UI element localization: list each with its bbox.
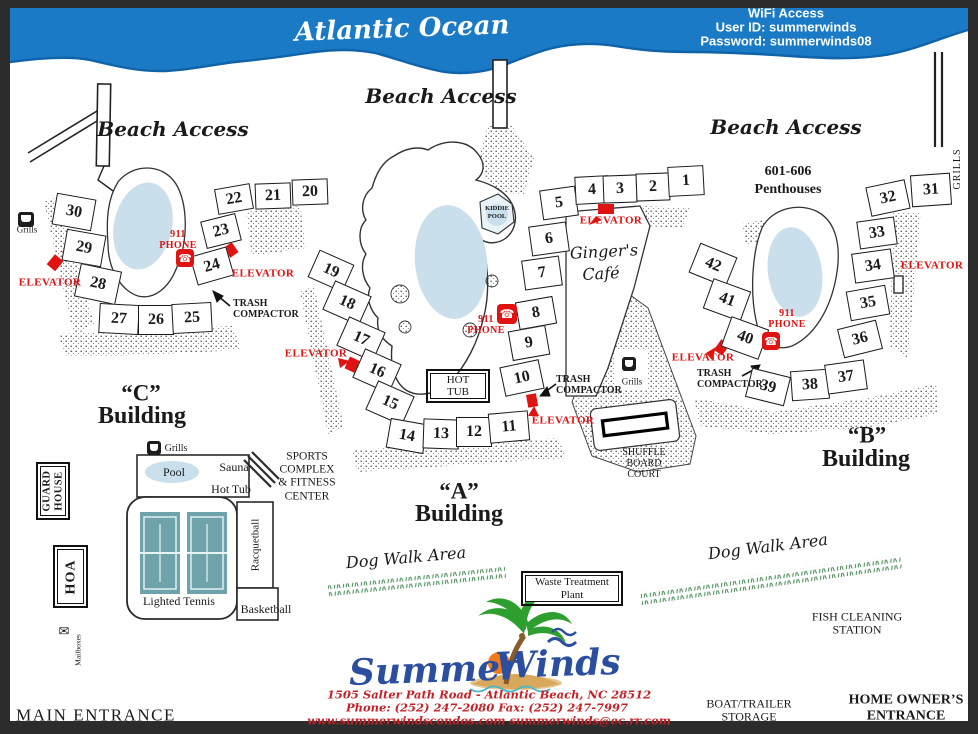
trash-line: TRASH: [697, 368, 731, 379]
unit-5: 5: [539, 186, 579, 221]
shuffle-line: BOARD: [626, 458, 661, 469]
shuffle-line: SHUFFLE: [622, 447, 665, 458]
logo-web-email: www.summerwindscondos.com summerwinds@ec…: [307, 715, 671, 727]
unit-29: 29: [62, 229, 107, 267]
main-entrance-label: MAIN ENTRANCE: [16, 707, 176, 724]
phone-glyph: ☎: [178, 252, 192, 265]
trash-compactor-b: TRASH COMPACTOR: [697, 368, 763, 390]
elevator-label-b-east: ELEVATOR: [901, 261, 964, 272]
beach-access-center: Beach Access: [365, 86, 516, 106]
elevator-label-a-north: ELEVATOR: [580, 216, 643, 227]
sports-line: SPORTS: [286, 451, 328, 464]
grill-icon: [147, 441, 161, 455]
grills-label-sports: Grills: [165, 444, 188, 454]
elevator-label-c-right: ELEVATOR: [232, 269, 295, 280]
grill-icon: [622, 357, 636, 371]
phone-911-icon: ☎: [762, 332, 780, 350]
racquetball-label: Racquetball: [251, 519, 262, 572]
phone-line: 911: [779, 308, 795, 319]
wifi-title: WiFi Access: [748, 7, 824, 20]
unit-21: 21: [255, 182, 292, 209]
phone-glyph: ☎: [764, 335, 778, 348]
trash-compactor-a: TRASH COMPACTOR: [556, 374, 622, 396]
beach-access-right: Beach Access: [710, 117, 861, 137]
sports-line: CENTER: [285, 490, 330, 503]
unit-1: 1: [667, 165, 705, 197]
phone-line: 911: [478, 314, 494, 325]
elevator-shaft-b-right: [894, 276, 903, 293]
elevator-label-b-west: ELEVATOR: [672, 353, 735, 364]
waste-line: Plant: [561, 589, 584, 601]
unit-38: 38: [790, 369, 830, 402]
mailboxes-label: Mailboxes: [74, 634, 82, 666]
logo-phone-fax: Phone: (252) 247-2080 Fax: (252) 247-799…: [346, 702, 628, 714]
hot-tub-box: HOT TUB: [430, 373, 486, 399]
elevator-label-a-east: ELEVATOR: [532, 416, 595, 427]
unit-37: 37: [824, 359, 868, 394]
phone-line: PHONE: [467, 325, 505, 336]
sports-complex-title: SPORTS COMPLEX & FITNESS CENTER: [278, 451, 335, 504]
gingers-cafe-line1: Ginger's: [570, 242, 639, 262]
sports-pool-label: Pool: [163, 466, 185, 478]
ocean-title: Atlantic Ocean: [294, 12, 510, 45]
guard-line: GUARD: [41, 471, 52, 512]
phone-line: PHONE: [768, 319, 806, 330]
unit-12: 12: [456, 417, 492, 447]
logo-name-part2: Winds: [495, 644, 621, 684]
guard-house-box: GUARD HOUSE: [40, 466, 66, 516]
grills-label-vertical: GRILLS: [953, 149, 963, 190]
trash-line: COMPACTOR: [697, 379, 763, 390]
homeowner-line: ENTRANCE: [867, 708, 946, 724]
penthouses-label: Penthouses: [755, 183, 822, 197]
hot-tub-text: HOT TUB: [447, 374, 470, 399]
unit-33: 33: [856, 216, 898, 249]
phone-911-icon: ☎: [497, 304, 517, 324]
boat-trailer-label: BOAT/TRAILER STORAGE: [706, 698, 791, 725]
hot-tub-line: TUB: [447, 386, 469, 398]
trash-line: TRASH: [556, 374, 590, 385]
logo-address: 1505 Salter Path Road - Atlantic Beach, …: [327, 689, 651, 701]
building-c-quote: “C”: [121, 382, 161, 405]
building-b-label: Building: [822, 447, 910, 471]
kiddie-pool-line1: KIDDIE: [485, 206, 509, 213]
unit-11: 11: [488, 410, 530, 443]
penthouses-range: 601-606: [765, 165, 812, 179]
phone-911-icon: ☎: [176, 249, 194, 267]
unit-27: 27: [98, 303, 140, 335]
hoa-box: HOA: [57, 549, 84, 604]
unit-31: 31: [910, 173, 952, 208]
unit-13: 13: [422, 418, 459, 449]
building-b-quote: “B”: [848, 424, 886, 447]
basketball-label: Basketball: [241, 603, 292, 615]
fish-cleaning-label: FISH CLEANING STATION: [812, 611, 902, 638]
homeowner-line: HOME OWNER’S: [849, 692, 964, 708]
resort-map: 30 29 28 27 26 25 24 23 22 21 20 19 18 1…: [0, 0, 978, 734]
unit-20: 20: [292, 178, 329, 205]
shuffle-line: COURT: [627, 470, 660, 481]
waste-treatment-box: Waste Treatment Plant: [525, 575, 619, 602]
elevator-label-c-left: ELEVATOR: [19, 278, 82, 289]
guard-line: HOUSE: [53, 471, 64, 510]
wifi-user: User ID: summerwinds: [716, 21, 857, 34]
phone-911-label-c: 911 PHONE: [159, 229, 197, 251]
shuffleboard-label: SHUFFLE BOARD COURT: [622, 447, 665, 481]
unit-7: 7: [521, 256, 563, 291]
fish-line: STATION: [832, 624, 881, 637]
unit-3: 3: [603, 174, 638, 203]
building-c-label: Building: [98, 404, 186, 428]
unit-34: 34: [851, 248, 895, 283]
wifi-password: Password: summerwinds08: [700, 35, 871, 48]
grills-label-dune: Grills: [622, 378, 643, 387]
building-a-quote: “A”: [439, 480, 479, 503]
mailboxes-icon: ✉: [59, 625, 70, 638]
beach-access-left: Beach Access: [97, 119, 248, 139]
trash-line: TRASH: [233, 298, 267, 309]
phone-911-label-b: 911 PHONE: [768, 308, 806, 330]
homeowner-entrance-label: HOME OWNER’S ENTRANCE: [849, 692, 964, 723]
grills-label-c: Grills: [17, 226, 38, 235]
hoa-text: HOA: [63, 559, 78, 594]
phone-glyph: ☎: [500, 307, 515, 322]
trash-line: COMPACTOR: [556, 385, 622, 396]
fish-line: FISH CLEANING: [812, 611, 902, 624]
logo-name-part1: Summer: [348, 649, 519, 691]
trash-line: COMPACTOR: [233, 309, 299, 320]
elevator-label-a-west: ELEVATOR: [285, 349, 348, 360]
phone-line: 911: [170, 229, 186, 240]
waste-line: Waste Treatment: [535, 576, 609, 588]
waste-treatment-text: Waste Treatment Plant: [535, 576, 609, 601]
trash-compactor-c: TRASH COMPACTOR: [233, 298, 299, 320]
unit-6: 6: [528, 222, 570, 257]
sauna-label: Sauna: [219, 461, 248, 473]
hot-tub-small-label: Hot Tub: [211, 483, 251, 495]
gingers-cafe-line2: Café: [582, 265, 620, 283]
sports-line: COMPLEX: [280, 464, 335, 477]
unit-26: 26: [138, 305, 174, 335]
unit-25: 25: [171, 302, 213, 334]
sports-line: & FITNESS: [278, 477, 335, 490]
guard-house-text: GUARD HOUSE: [41, 471, 64, 512]
boat-line: STORAGE: [721, 711, 776, 724]
kiddie-pool-line2: POOL: [488, 214, 506, 221]
unit-2: 2: [636, 172, 671, 201]
hot-tub-line: HOT: [447, 374, 470, 386]
unit-30: 30: [52, 193, 97, 231]
lighted-tennis-label: Lighted Tennis: [143, 595, 215, 607]
boat-line: BOAT/TRAILER: [706, 698, 791, 711]
building-a-label: Building: [415, 502, 503, 526]
